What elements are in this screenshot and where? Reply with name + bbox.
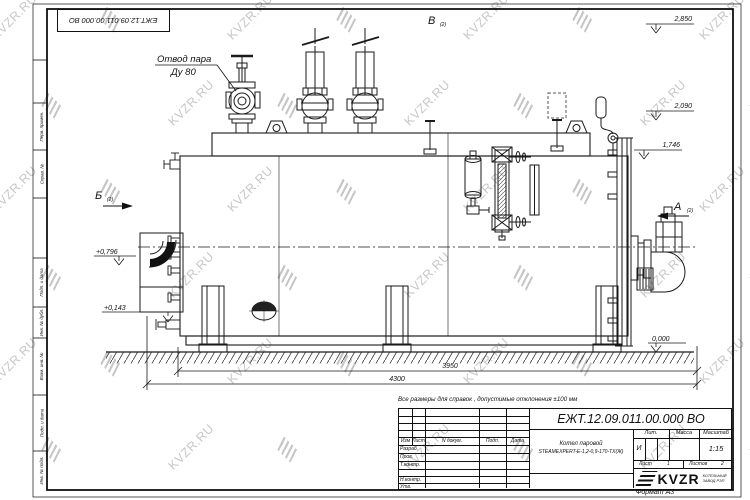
view-label-a: А (673, 201, 681, 213)
row-utv: Утв. (400, 485, 411, 490)
sheets-value: 2 (721, 462, 724, 467)
dim-3950: 3950 (442, 363, 458, 370)
view-label-b: Б (95, 190, 102, 202)
kvzr-sub-line1: КОТЕЛЬНЫЙ (703, 474, 727, 479)
sheets-label: Листов (689, 462, 707, 467)
water-level-gauge (465, 147, 539, 240)
steam-outlet-valve (226, 56, 260, 133)
view-label-b-sub: (2) (107, 197, 113, 203)
kvzr-logo-subtext: КОТЕЛЬНЫЙ ЗАВОД РЭП (703, 474, 727, 483)
sheet-label: Лист (639, 462, 652, 467)
manufacturer-logo: KVZR КОТЕЛЬНЫЙ ЗАВОД РЭП (633, 468, 733, 489)
row-nkontr: Н.контр. (400, 478, 421, 483)
elev-2090: 2,090 (673, 103, 692, 110)
kvzr-logo-icon (636, 471, 658, 486)
manhole (249, 300, 279, 322)
elev-0796: +0,796 (96, 249, 118, 256)
boiler-supports (199, 286, 621, 352)
col-list: Лист (412, 439, 425, 444)
kvzr-logo-text: KVZR (657, 471, 699, 487)
massa-label: Масса (669, 431, 699, 437)
title-block: Изм Лист N докум. Подп. Дата Разраб. Про… (398, 408, 732, 490)
row-prov: Пров. (400, 455, 413, 460)
burner (631, 207, 685, 292)
view-label-v-sub: (2) (440, 22, 446, 28)
product-name-line1: Котел паровой (529, 441, 633, 447)
margin-label: Перв. примен. (39, 112, 44, 142)
margin-label: Подп. и дата (40, 408, 45, 437)
masshtab-label: Масштаб (699, 431, 733, 437)
margin-label: Инв. № подл. (39, 457, 44, 485)
top-designation-text: ЕЖТ.12.09.011.00.000 ВО (69, 16, 157, 25)
safety-valve-1 (297, 28, 333, 133)
kvzr-sub-line2: ЗАВОД РЭП (703, 479, 727, 484)
safety-valve-2 (347, 28, 383, 133)
col-data: Дата (506, 439, 529, 444)
top-sensors (424, 93, 618, 156)
callout-line1: Отвод пара (157, 54, 211, 65)
designation: ЕЖТ.12.09.011.00.000 ВО (529, 413, 733, 426)
row-razrab: Разраб. (400, 447, 418, 452)
margin-label: Инв. № дубл. (39, 309, 44, 337)
top-designation-stamp: ЕЖТ.12.09.011.00.000 ВО (57, 9, 170, 32)
elev-0143: +0,143 (104, 305, 126, 312)
margin-label: Взам. инв. № (39, 352, 44, 380)
margin-label: Подп. и дата (39, 268, 44, 297)
steam-outlet-callout: Отвод пара Ду 80 (155, 54, 236, 91)
lit-label: Лит. (633, 431, 669, 437)
dim-4300: 4300 (389, 376, 405, 383)
sheet-value: 1 (667, 462, 670, 467)
row-tkontr: Т.контр. (400, 463, 420, 468)
margin-label: Справ. № (40, 164, 45, 185)
reference-note: Все размеры для справок , допустимые отк… (398, 396, 738, 403)
format-label: Формат А3 (580, 489, 730, 496)
col-izm: Изм (399, 439, 412, 444)
col-podp: Подп. (479, 439, 506, 444)
callout-line2: Ду 80 (170, 67, 196, 78)
elev-0000: 0,000 (652, 336, 670, 343)
lit-value: И (633, 445, 645, 452)
product-name-line2: STEAMEXPERT-Е-1,2-0,9-170-ТХ(Ж) (529, 450, 633, 455)
rear-flange-ring (608, 138, 633, 346)
elev-1746: 1,746 (662, 142, 680, 149)
ground-hatch (106, 352, 694, 364)
view-label-v: В (428, 15, 435, 27)
masshtab-value: 1:15 (699, 445, 733, 453)
view-label-a-sub: (2) (687, 208, 693, 214)
col-ndoc: N докум. (425, 439, 479, 444)
margin-labels: Перв. примен. Справ. № Подп. и дата Инв.… (39, 112, 45, 485)
drawing-sheet: KVZR.RUKVZR.RUKVZR.RUKVZR.RUKVZR.RUKVZR.… (0, 0, 750, 500)
elev-2850: 2,850 (673, 16, 692, 23)
